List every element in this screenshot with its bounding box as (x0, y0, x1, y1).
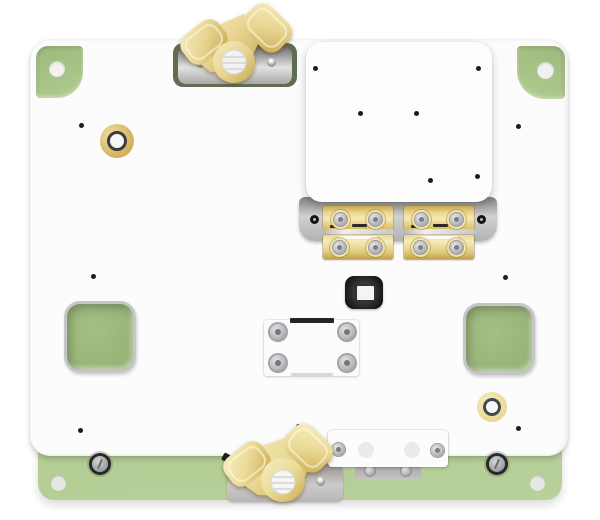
hole-dot (313, 66, 318, 71)
corner-tab-hole (537, 62, 554, 79)
corner-tab-hole (49, 61, 65, 77)
cutout-right (463, 303, 535, 375)
bracket-hole-light (358, 442, 374, 458)
block-slot (290, 318, 334, 323)
screw (414, 241, 427, 254)
raised-sub-plate (306, 42, 492, 202)
wing-nut-bottom (210, 413, 350, 520)
screw (333, 241, 346, 254)
block-slot (291, 373, 333, 377)
screw (339, 324, 355, 340)
hole-dot (79, 123, 84, 128)
hole-dot (476, 66, 481, 71)
bracket-hole-light (404, 442, 420, 458)
hole-dot (78, 428, 83, 433)
screw (270, 324, 286, 340)
screw (334, 213, 347, 226)
wing-nut-top (160, 0, 310, 100)
cutout-left (64, 301, 136, 373)
screw (369, 241, 382, 254)
screw (401, 466, 411, 476)
hole-dot (503, 275, 508, 280)
screw (339, 355, 355, 371)
hole-dot (516, 124, 521, 129)
screw (431, 444, 444, 457)
screw (450, 213, 463, 226)
screw (369, 213, 382, 226)
hinge-slot (433, 224, 448, 227)
screw (450, 241, 463, 254)
bushing-bore (107, 131, 127, 151)
base-hole (530, 476, 545, 491)
screw (415, 213, 428, 226)
bushing-bore (483, 398, 501, 416)
hinge-slot (352, 224, 367, 227)
hole-dot (516, 426, 521, 431)
hole-dot (358, 111, 363, 116)
screw (270, 355, 286, 371)
base-hole (51, 476, 66, 491)
hole-dot (475, 174, 480, 179)
carrier-hole (310, 215, 319, 224)
socket-insert (355, 284, 376, 302)
hole-dot (414, 111, 419, 116)
carrier-hole (477, 215, 486, 224)
hole-dot (428, 178, 433, 183)
hole-dot (91, 274, 96, 279)
base-screw (489, 456, 505, 472)
fixture-render (0, 0, 600, 520)
base-screw (92, 456, 108, 472)
screw (365, 466, 375, 476)
